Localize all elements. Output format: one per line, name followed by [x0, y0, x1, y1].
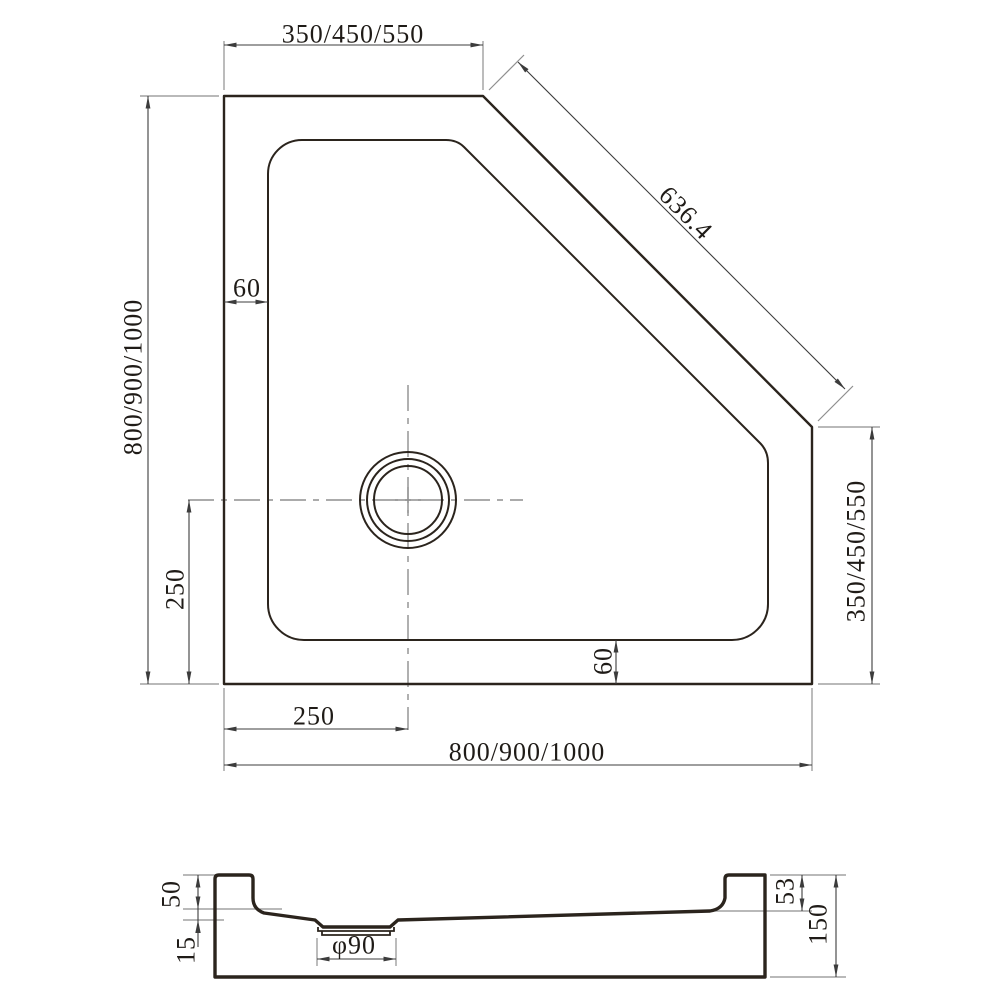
dim-label-left-height: 800/900/1000	[119, 299, 148, 455]
dimension-lines-top-view	[148, 45, 872, 765]
top-view: 350/450/550 636.4 800/900/1000 60 350/45…	[119, 20, 881, 772]
section-view: 50 15 φ90 53 150	[157, 875, 847, 977]
dim-label-diagonal: 636.4	[653, 180, 718, 245]
floor-drop-arrow	[195, 920, 200, 933]
dim-label-right-side: 350/450/550	[842, 480, 871, 622]
section-outline	[215, 875, 765, 977]
dim-label-drain-diameter: φ90	[332, 931, 376, 960]
dim-label-rim-depth-left: 50	[157, 880, 186, 908]
dim-label-rim-left: 60	[233, 274, 261, 303]
extension-lines-top-view	[140, 41, 880, 771]
dim-label-drain-horizontal: 250	[293, 702, 335, 731]
dim-label-floor-drop: 15	[172, 936, 201, 964]
extension-lines-section	[183, 875, 846, 977]
dim-label-drain-vertical: 250	[161, 568, 190, 610]
dim-label-rim-bottom: 60	[589, 647, 618, 675]
drain-centerlines	[188, 385, 523, 730]
outer-contour	[224, 96, 812, 684]
dim-label-top-width: 350/450/550	[282, 20, 424, 49]
shower-tray-technical-drawing: 350/450/550 636.4 800/900/1000 60 350/45…	[0, 0, 1000, 1000]
dim-label-rim-depth-right: 53	[771, 877, 800, 905]
drawing-canvas: 350/450/550 636.4 800/900/1000 60 350/45…	[0, 0, 1000, 1000]
dim-label-bottom-width: 800/900/1000	[449, 738, 605, 767]
dim-label-total-height: 150	[804, 903, 833, 945]
dimension-lines-section	[198, 875, 836, 977]
